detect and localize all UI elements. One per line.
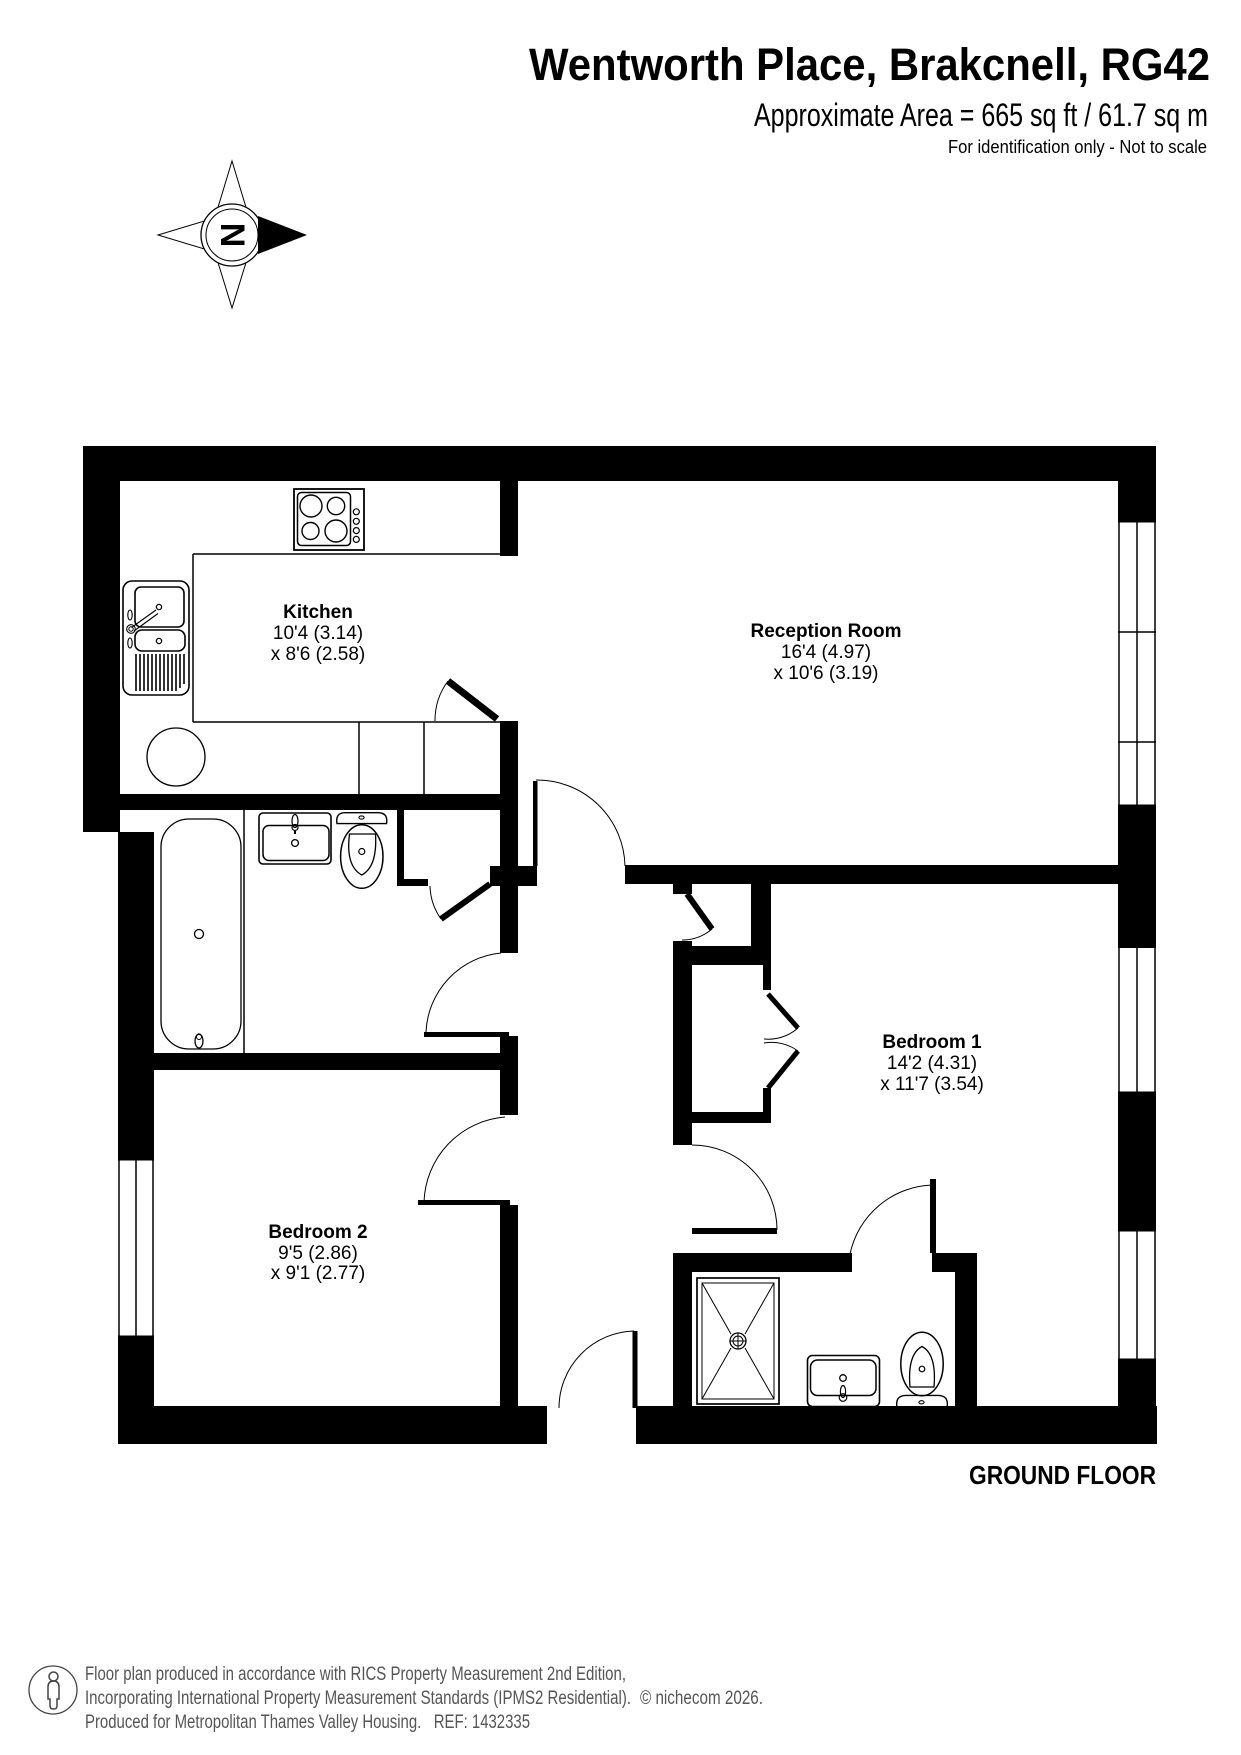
- svg-text:x 8'6 (2.58): x 8'6 (2.58): [271, 644, 365, 665]
- svg-text:x 9'1 (2.77): x 9'1 (2.77): [271, 1263, 365, 1284]
- svg-text:Floor plan produced in accorda: Floor plan produced in accordance with R…: [85, 1664, 626, 1685]
- svg-text:14'2 (4.31): 14'2 (4.31): [887, 1053, 977, 1074]
- svg-text:GROUND FLOOR: GROUND FLOOR: [969, 1460, 1156, 1490]
- svg-text:© nichecom 2026.: © nichecom 2026.: [640, 1688, 763, 1709]
- svg-text:10'4 (3.14): 10'4 (3.14): [273, 623, 363, 644]
- svg-text:N: N: [213, 223, 251, 248]
- svg-text:Bedroom 1: Bedroom 1: [882, 1032, 982, 1053]
- svg-text:16'4 (4.97): 16'4 (4.97): [781, 642, 871, 663]
- svg-text:Reception Room: Reception Room: [751, 621, 902, 642]
- svg-text:Incorporating International Pr: Incorporating International Property Mea…: [85, 1688, 631, 1709]
- svg-text:x 10'6 (3.19): x 10'6 (3.19): [773, 663, 878, 684]
- svg-text:Kitchen: Kitchen: [283, 602, 353, 623]
- svg-text:Bedroom 2: Bedroom 2: [268, 1222, 367, 1243]
- svg-text:For identification only - Not: For identification only - Not to scale: [948, 136, 1207, 157]
- svg-text:x 11'7 (3.54): x 11'7 (3.54): [880, 1074, 984, 1095]
- svg-text:9'5 (2.86): 9'5 (2.86): [278, 1243, 358, 1264]
- svg-text:Wentworth Place, Brakcnell, RG: Wentworth Place, Brakcnell, RG42: [529, 39, 1210, 90]
- svg-text:Approximate Area = 665 sq ft /: Approximate Area = 665 sq ft / 61.7 sq m: [754, 97, 1208, 133]
- svg-text:Produced for Metropolitan Tham: Produced for Metropolitan Thames Valley …: [85, 1712, 530, 1733]
